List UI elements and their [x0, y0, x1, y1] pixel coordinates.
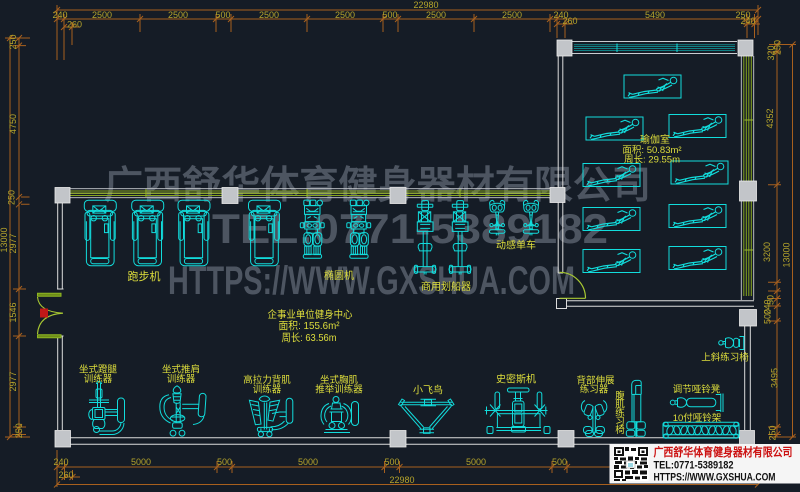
svg-text:22980: 22980 — [413, 0, 438, 10]
svg-text:5000: 5000 — [466, 457, 486, 467]
svg-text:TEL:0771-5389182: TEL:0771-5389182 — [212, 205, 608, 252]
svg-text:广西舒华体育健身器材有限公司: 广西舒华体育健身器材有限公司 — [654, 445, 793, 459]
svg-text:2977: 2977 — [8, 371, 18, 391]
svg-text:500: 500 — [763, 309, 773, 324]
svg-text:4750: 4750 — [8, 114, 18, 134]
svg-text:320: 320 — [766, 45, 776, 60]
svg-text:2500: 2500 — [426, 10, 446, 20]
svg-text:260: 260 — [563, 16, 578, 26]
svg-text:5000: 5000 — [131, 457, 151, 467]
svg-text:小飞鸟: 小飞鸟 — [413, 384, 443, 397]
svg-text:TEL:0771-5389182: TEL:0771-5389182 — [654, 460, 734, 472]
svg-text:500: 500 — [382, 10, 397, 20]
svg-text:动感单车: 动感单车 — [496, 239, 536, 252]
svg-text:3200: 3200 — [762, 242, 772, 262]
svg-text:HTTPS://WWW.GXSHUA.COM: HTTPS://WWW.GXSHUA.COM — [168, 259, 575, 303]
svg-text:推举训练器: 推举训练器 — [315, 384, 363, 396]
svg-text:500: 500 — [215, 10, 230, 20]
svg-text:3495: 3495 — [770, 368, 780, 388]
svg-text:2500: 2500 — [259, 10, 279, 20]
svg-text:240: 240 — [53, 457, 68, 467]
svg-text:训练器: 训练器 — [253, 384, 282, 396]
svg-text:240: 240 — [740, 16, 755, 26]
svg-text:调节哑铃凳: 调节哑铃凳 — [673, 384, 721, 396]
svg-text:10付哑铃架: 10付哑铃架 — [673, 412, 722, 424]
svg-text:240: 240 — [52, 10, 67, 20]
svg-text:HTTPS://WWW.GXSHUA.COM: HTTPS://WWW.GXSHUA.COM — [654, 472, 776, 484]
svg-text:22980: 22980 — [389, 475, 414, 485]
svg-text:5490: 5490 — [645, 10, 665, 20]
svg-text:面积: 155.6m²: 面积: 155.6m² — [279, 320, 340, 332]
svg-text:2500: 2500 — [502, 10, 522, 20]
svg-text:训练器: 训练器 — [167, 373, 196, 385]
svg-text:2977: 2977 — [8, 233, 18, 253]
svg-text:周长: 63.56m: 周长: 63.56m — [282, 332, 337, 344]
svg-text:训练器: 训练器 — [84, 373, 113, 385]
svg-text:4352: 4352 — [765, 108, 775, 128]
svg-text:上斜练习椅: 上斜练习椅 — [701, 352, 749, 364]
svg-text:2500: 2500 — [168, 10, 188, 20]
svg-text:500: 500 — [552, 457, 567, 467]
svg-text:260: 260 — [59, 470, 74, 480]
svg-text:练习器: 练习器 — [580, 384, 609, 396]
svg-text:250: 250 — [768, 425, 778, 440]
svg-text:500: 500 — [217, 457, 232, 467]
svg-text:250: 250 — [7, 190, 17, 205]
svg-text:2500: 2500 — [92, 10, 112, 20]
svg-text:1546: 1546 — [8, 302, 18, 322]
svg-text:260: 260 — [67, 20, 82, 30]
svg-text:椭圆机: 椭圆机 — [324, 269, 354, 282]
svg-text:250: 250 — [14, 423, 24, 438]
svg-text:商用划船器: 商用划船器 — [421, 280, 471, 293]
svg-text:周长: 29.55m: 周长: 29.55m — [624, 154, 680, 166]
svg-text:5000: 5000 — [298, 457, 318, 467]
svg-text:跑步机: 跑步机 — [128, 269, 161, 283]
svg-text:250: 250 — [8, 34, 18, 49]
svg-text:2500: 2500 — [335, 10, 355, 20]
svg-text:13000: 13000 — [782, 242, 792, 267]
svg-text:500: 500 — [384, 457, 399, 467]
svg-text:史密斯机: 史密斯机 — [496, 373, 536, 386]
svg-text:椅: 椅 — [615, 424, 625, 436]
